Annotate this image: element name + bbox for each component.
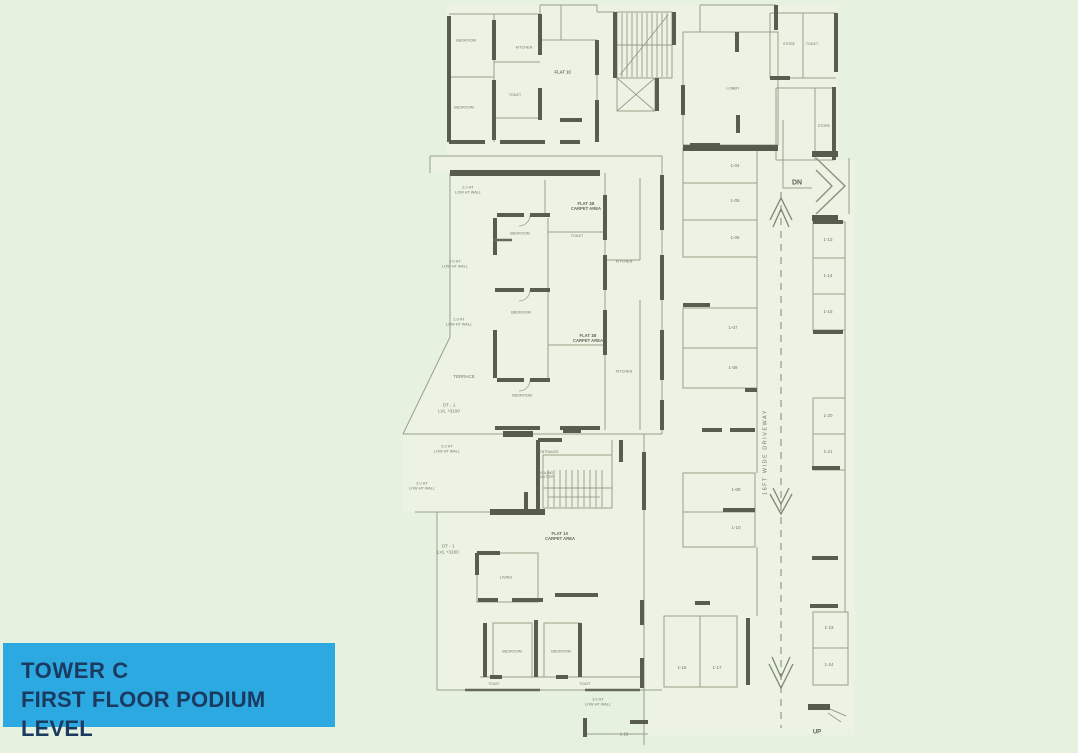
annotation-layer: DNUP16FT WIDE DRIVEWAYTERRACEOT - 1 LVL …: [0, 0, 1078, 753]
parking-stall-number: 1-07: [728, 325, 737, 331]
room-label: TOILET: [806, 42, 818, 46]
room-label: KITCHEN: [616, 370, 633, 375]
wall-note: 2.0 HT LOW HT WALL: [442, 259, 468, 268]
flat-label: FLAT 1C: [555, 69, 572, 74]
flat-label: FLAT 1B CARPET AREA: [573, 333, 603, 344]
parking-stall-number: 1-17: [712, 665, 721, 671]
room-label: STORE: [818, 124, 830, 128]
room-label: BEDROOM: [454, 106, 474, 111]
terrace-label: OT - 1 LVL +3100: [437, 543, 458, 554]
parking-stall-number: 1-13: [823, 237, 832, 243]
terrace-label: TERRACE: [453, 374, 475, 380]
room-label: KITCHEN: [616, 260, 633, 265]
parking-stall-number: 1-10: [731, 525, 740, 531]
parking-stall-number: 1-15: [823, 309, 832, 315]
marker-up: UP: [813, 729, 821, 737]
title-box: TOWER C FIRST FLOOR PODIUM LEVEL: [3, 643, 335, 727]
parking-stall-number: 1-04: [730, 163, 739, 169]
room-label: ENTRANCE: [539, 450, 558, 454]
room-label: ROLLING SHUTTER: [538, 471, 553, 479]
room-label: LOBBY: [726, 86, 739, 91]
parking-stall-number: 1-18: [620, 731, 628, 736]
wall-note: 2.0 HT LOW HT WALL: [409, 481, 435, 490]
room-label: LIVING: [500, 576, 512, 581]
room-label: TOILET: [571, 234, 583, 238]
room-label: BEDROOM: [551, 650, 571, 655]
room-label: TOILET: [488, 682, 499, 686]
floor-level-name: FIRST FLOOR PODIUM LEVEL: [21, 685, 335, 743]
room-label: BEDROOM: [456, 39, 476, 44]
driveway-label: 16FT WIDE DRIVEWAY: [763, 409, 770, 495]
room-label: BEDROOM: [510, 232, 530, 237]
parking-stall-number: 1-23: [824, 625, 833, 631]
room-label: TOILET: [579, 682, 590, 686]
room-label: KITCHEN: [516, 46, 533, 51]
parking-stall-number: 1-05: [730, 198, 739, 204]
flat-label: FLAT 1B CARPET AREA: [571, 201, 601, 212]
parking-stall-number: 1-14: [823, 273, 832, 279]
wall-note: 3.5 HT LOW HT WALL: [585, 697, 611, 706]
wall-note: 2.0 HT LOW HT WALL: [434, 444, 460, 453]
room-label: BEDROOM: [502, 650, 522, 655]
parking-stall-number: 1-24: [824, 662, 833, 668]
room-label: STORE: [783, 42, 795, 46]
flat-label: FLAT 1A CARPET AREA: [545, 531, 575, 542]
room-label: BEDROOM: [512, 394, 532, 399]
wall-note: 2.0 HT LOW HT WALL: [446, 317, 472, 326]
tower-name: TOWER C: [21, 656, 335, 685]
terrace-label: OT - 1 LVL +3100: [438, 402, 459, 413]
room-label: BEDROOM: [511, 311, 531, 316]
marker-dn: DN: [792, 180, 802, 189]
wall-note: 2.0 HT LOW HT WALL: [455, 185, 481, 194]
parking-stall-number: 1-06: [730, 235, 739, 241]
parking-stall-number: 1-08: [728, 365, 737, 371]
parking-stall-number: 1-20: [823, 413, 832, 419]
room-label: TOILET: [509, 93, 521, 97]
parking-stall-number: 1-09: [731, 487, 740, 493]
parking-stall-number: 1-16: [677, 665, 686, 671]
parking-stall-number: 1-21: [823, 449, 832, 455]
floor-plan-page: DNUP16FT WIDE DRIVEWAYTERRACEOT - 1 LVL …: [0, 0, 1078, 753]
